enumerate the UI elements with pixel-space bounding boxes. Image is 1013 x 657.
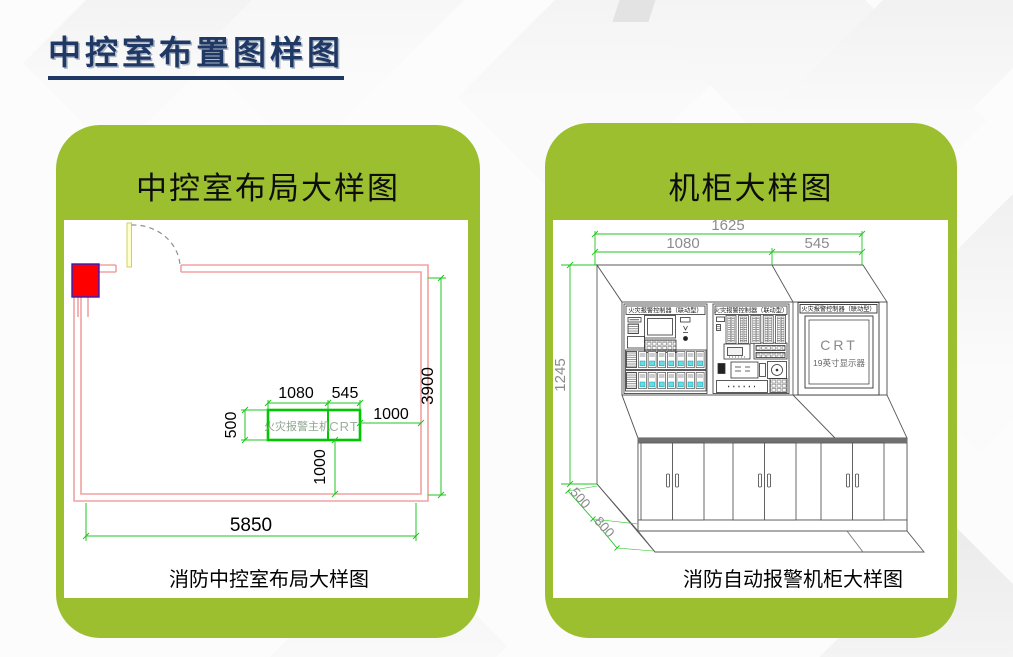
background-shape	[612, 0, 655, 22]
panel1-keypad	[645, 340, 677, 353]
dimension-labels: 1080 545 500 1000 1000 3900 5850	[223, 367, 437, 536]
counter-edge-strip	[638, 438, 907, 443]
cabinet-floor	[638, 531, 924, 552]
fire-alarm-host-label: 火灾报警主机	[264, 419, 330, 433]
dim-545: 545	[332, 385, 359, 402]
desk-slope	[622, 395, 907, 438]
panel1-label: 火灾报警控制器（联动型）	[628, 307, 702, 315]
page-title: 中控室布置图样图	[48, 36, 344, 80]
room-plan-drawing: 火灾报警主机 CRT	[64, 220, 468, 598]
cabinet-top-face	[597, 265, 887, 302]
panel2-label: 火灾报警控制器（联动型）	[714, 307, 788, 315]
right-card-drawing-area: 火灾报警控制器（联动型）	[553, 220, 948, 598]
left-drawing-caption: 消防中控室布局大样图	[169, 568, 369, 591]
cabinet-plinth	[638, 520, 907, 531]
crt-screen-label: CRT	[820, 337, 858, 353]
dim-1245: 1245	[553, 358, 569, 391]
left-card-drawing-area: 火灾报警主机 CRT	[64, 220, 468, 598]
cabinet-drawing: 火灾报警控制器（联动型）	[553, 220, 948, 598]
panel3-label: 火灾报警控制器（联动型）	[801, 305, 875, 313]
dim-3900: 3900	[418, 367, 437, 405]
dim-1080-cab: 1080	[666, 235, 699, 252]
dim-1000-front: 1000	[312, 449, 329, 485]
right-card-title: 机柜大样图	[545, 163, 957, 208]
door-leaf	[127, 223, 132, 267]
crt-label: CRT	[329, 419, 358, 434]
cabinet-doors	[641, 443, 884, 520]
dim-500-depth: 500	[567, 485, 593, 512]
panel2-slot-bank	[726, 316, 786, 344]
room-walls	[74, 265, 428, 501]
dim-5850: 5850	[230, 515, 272, 536]
cabinet-detail-card: 机柜大样图	[545, 123, 957, 638]
dim-1625: 1625	[711, 220, 744, 234]
dim-800-depth: 800	[591, 514, 617, 541]
equipment-box: 火灾报警主机 CRT	[264, 410, 360, 440]
control-room-layout-card: 中控室布局大样图 火灾报警主机	[56, 125, 480, 638]
slide: 中控室布置图样图 中控室布局大样图	[0, 0, 1013, 657]
right-drawing-caption: 消防自动报警机柜大样图	[683, 568, 903, 591]
dim-545-cab: 545	[804, 235, 829, 252]
crt-screen-sublabel: 19英寸显示器	[813, 358, 865, 368]
door-swing-arc	[132, 225, 181, 265]
dim-1080: 1080	[278, 385, 314, 402]
left-card-title: 中控室布局大样图	[56, 163, 480, 208]
dim-500: 500	[223, 412, 240, 439]
dim-1000-right: 1000	[373, 406, 409, 423]
red-equipment-block	[72, 264, 99, 297]
